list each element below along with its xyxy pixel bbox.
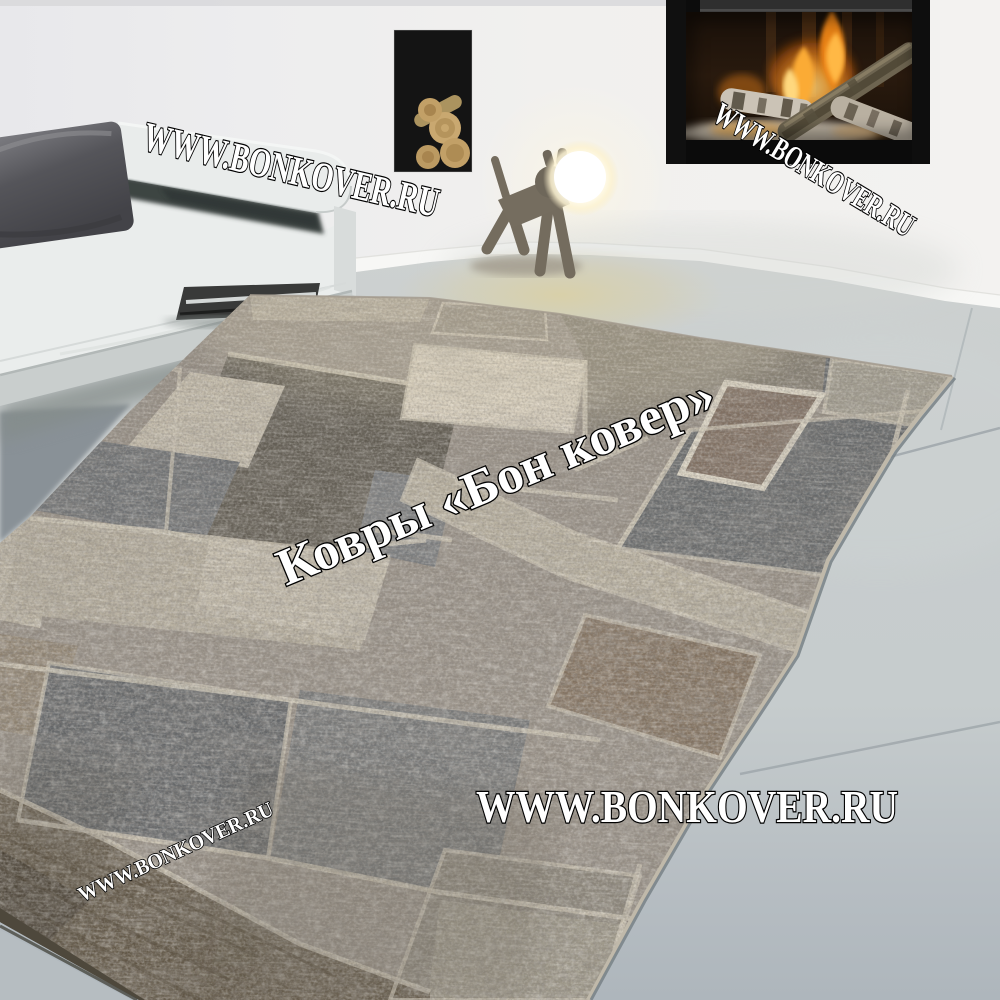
svg-text:WWW.BONKOVER.RU: WWW.BONKOVER.RU [476,781,898,832]
